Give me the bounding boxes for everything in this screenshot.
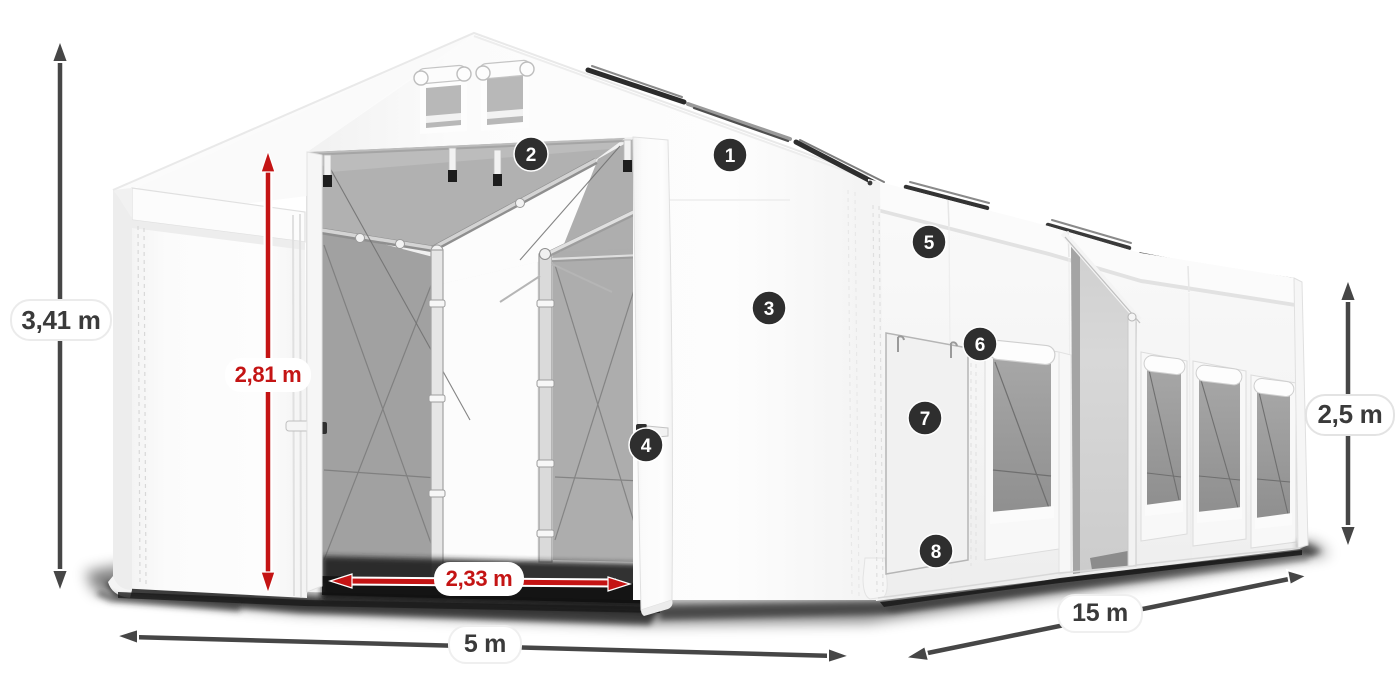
svg-text:2,81 m: 2,81 m	[235, 362, 302, 387]
svg-text:2: 2	[526, 145, 537, 166]
svg-text:3,41 m: 3,41 m	[21, 305, 100, 335]
svg-text:4: 4	[641, 436, 652, 457]
svg-text:5: 5	[924, 233, 935, 254]
svg-text:2,5 m: 2,5 m	[1318, 399, 1383, 429]
svg-text:6: 6	[975, 335, 986, 356]
svg-text:15 m: 15 m	[1072, 599, 1128, 627]
svg-text:3: 3	[764, 299, 775, 320]
svg-text:2,33 m: 2,33 m	[446, 566, 513, 591]
svg-text:8: 8	[931, 542, 942, 563]
svg-text:5 m: 5 m	[464, 630, 506, 658]
svg-text:1: 1	[725, 146, 736, 167]
svg-text:7: 7	[920, 409, 931, 430]
